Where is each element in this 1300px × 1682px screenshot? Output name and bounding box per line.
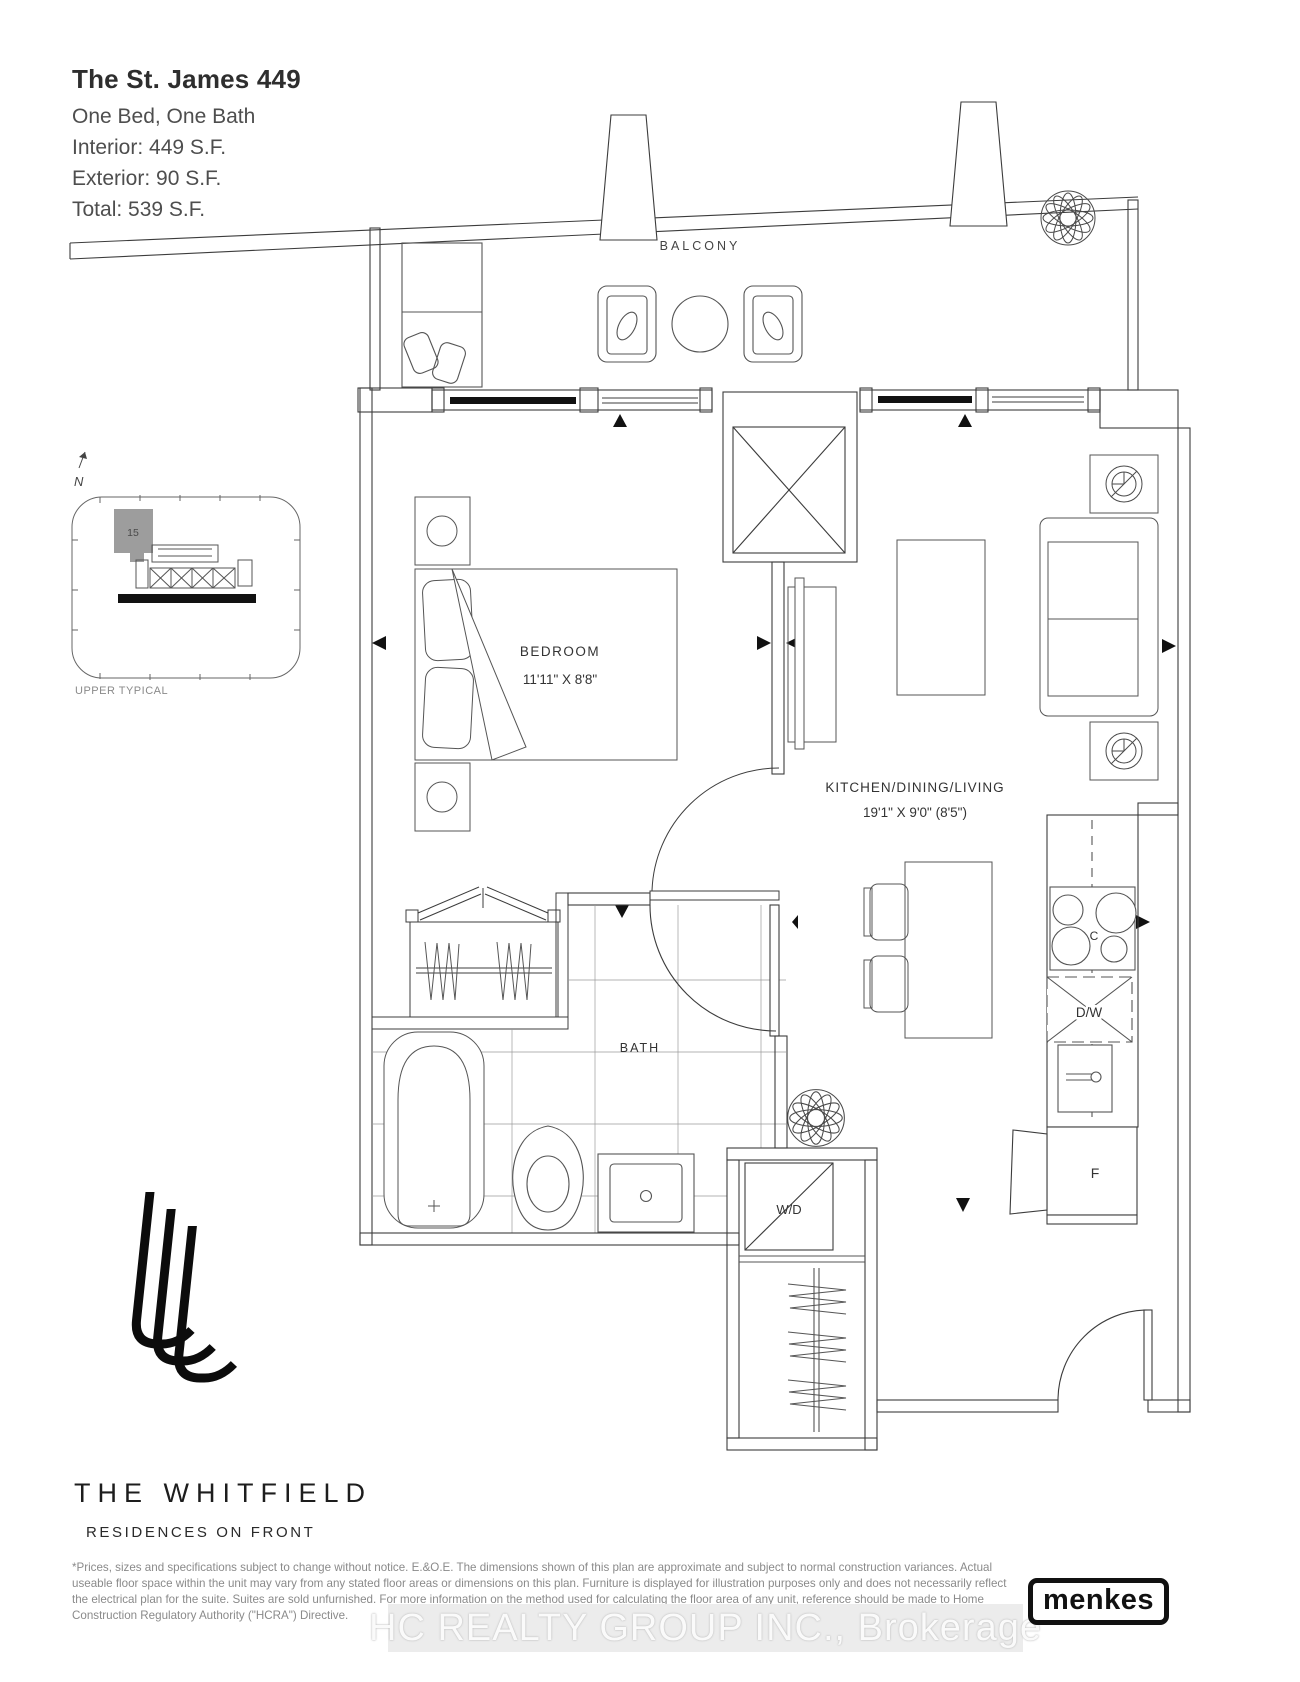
kitchen: C D/W F: [1010, 803, 1178, 1224]
bedroom: BEDROOM 11'11" X 8'8": [415, 497, 779, 900]
kitchen-label: KITCHEN/DINING/LIVING: [825, 780, 1004, 795]
wall: [775, 1036, 787, 1148]
window: [860, 388, 1100, 412]
lamp-icon: [1106, 466, 1142, 502]
end-table: [1090, 455, 1158, 513]
hanging-clothes-icon: [497, 942, 531, 1000]
wall: [877, 1400, 1058, 1412]
section-markers: [372, 414, 1176, 1212]
cooktop-label: C: [1090, 929, 1099, 943]
left-wall: [360, 388, 372, 1245]
page-title: The St. James 449: [72, 64, 301, 95]
bathtub: [384, 1032, 484, 1228]
wall: [568, 893, 650, 905]
menkes-logo: menkes: [1028, 1578, 1169, 1625]
menkes-logo-text: menkes: [1043, 1584, 1154, 1616]
floor-plan: BALCONY: [0, 0, 1300, 1682]
wall: [1138, 803, 1178, 815]
whitfield-logo: [130, 1192, 252, 1378]
key-plan-caption: UPPER TYPICAL: [75, 685, 168, 697]
hanging-clothes-icon: [788, 1284, 846, 1314]
bath-door: [650, 905, 779, 1036]
balcony-chair: [744, 286, 802, 362]
fridge-label: F: [1091, 1165, 1100, 1181]
right-wall: [1178, 428, 1190, 1412]
kitchen-sink: [1058, 1045, 1112, 1112]
wall: [1148, 1400, 1190, 1412]
wall: [358, 388, 432, 412]
section-marker-icon: [372, 636, 386, 650]
wall: [727, 1160, 739, 1438]
section-marker-icon: [613, 414, 627, 427]
building-fin: [600, 115, 657, 240]
section-marker-icon: [958, 414, 972, 427]
brand-name: THE WHITFIELD: [74, 1478, 372, 1509]
vanity-sink: [598, 1154, 694, 1232]
fridge: [1010, 1127, 1137, 1224]
end-table: [1090, 722, 1158, 780]
dishwasher-label: D/W: [1076, 1005, 1103, 1020]
total-area: Total: 539 S.F.: [72, 194, 301, 225]
key-plan: N 15: [72, 452, 300, 697]
washer-dryer-label: W/D: [776, 1202, 801, 1217]
coffee-table: [897, 540, 985, 695]
nightstand: [415, 497, 470, 565]
plant-icon: [788, 1090, 845, 1147]
section-marker-icon: [792, 915, 798, 929]
balcony-right-wall: [1128, 200, 1138, 390]
floorplan-sheet: The St. James 449 One Bed, One Bath Inte…: [0, 0, 1300, 1682]
exterior-area: Exterior: 90 S.F.: [72, 163, 301, 194]
bedroom-wall: [772, 562, 784, 774]
nightstand: [415, 763, 470, 831]
watermark-text: HC REALTY GROUP INC., Brokerage: [369, 1607, 1042, 1650]
section-marker-icon: [615, 905, 629, 918]
wall: [360, 1233, 739, 1245]
section-marker-icon: [757, 636, 771, 650]
balcony-label: BALCONY: [660, 239, 741, 253]
bedroom-door: [650, 768, 779, 900]
balcony-table: [672, 296, 728, 352]
wall: [1100, 390, 1178, 428]
watermark: HC REALTY GROUP INC., Brokerage: [388, 1604, 1023, 1652]
bedroom-closet: [372, 887, 568, 1029]
brand-tagline: RESIDENCES ON FRONT: [86, 1524, 315, 1541]
bedroom-label: BEDROOM: [520, 644, 600, 659]
bath-label: BATH: [620, 1041, 660, 1055]
north-label: N: [74, 474, 84, 489]
balcony-lounger: [402, 243, 482, 387]
tv-console: [788, 578, 836, 749]
wall: [372, 1017, 568, 1029]
north-arrow-icon: [79, 452, 87, 468]
balcony-left-wall: [370, 228, 380, 390]
dining-table-set: [864, 862, 992, 1038]
lamp-icon: [1106, 733, 1142, 769]
hanging-clothes-icon: [425, 942, 459, 1000]
hanging-clothes-icon: [788, 1380, 846, 1410]
sofa: [1040, 518, 1158, 716]
wall: [865, 1160, 877, 1450]
window: [432, 388, 712, 412]
laundry-closet: W/D: [727, 1090, 877, 1450]
kitchen-dims: 19'1" X 9'0" (8'5"): [863, 805, 967, 820]
section-marker-icon: [956, 1198, 970, 1212]
building-fin: [950, 102, 1007, 226]
hanging-clothes-icon: [788, 1332, 846, 1362]
title-block: The St. James 449 One Bed, One Bath Inte…: [72, 64, 301, 225]
bedroom-dims: 11'11" X 8'8": [523, 672, 597, 687]
bed: [415, 569, 677, 760]
plant-icon: [1041, 191, 1095, 245]
bath: BATH: [360, 893, 790, 1245]
wall: [727, 1148, 877, 1160]
section-marker-icon: [1162, 639, 1176, 653]
shaft: [723, 392, 857, 562]
balcony-chair: [598, 286, 656, 362]
key-plan-unit-number: 15: [127, 527, 139, 539]
entry-door: [1058, 1310, 1152, 1400]
wall: [727, 1438, 877, 1450]
toilet: [513, 1126, 584, 1230]
interior-area: Interior: 449 S.F.: [72, 132, 301, 163]
unit-type: One Bed, One Bath: [72, 101, 301, 132]
entry: [877, 1310, 1190, 1412]
